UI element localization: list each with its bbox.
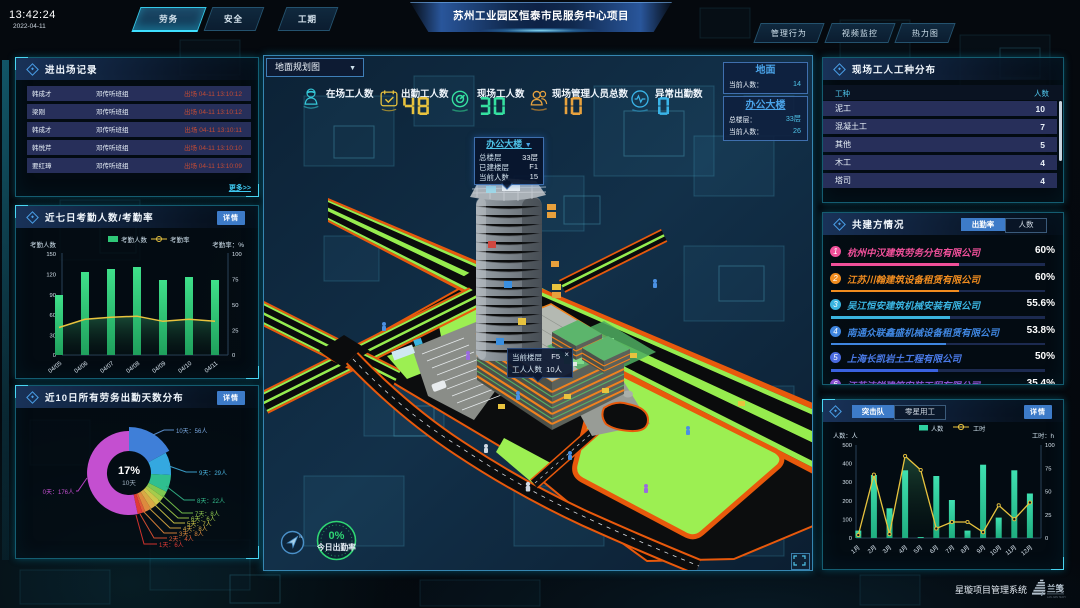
svg-text:2月: 2月 (867, 544, 879, 555)
svg-text:04/11: 04/11 (204, 360, 220, 374)
svg-text:10月: 10月 (989, 544, 1003, 557)
svg-text:300: 300 (842, 480, 852, 486)
svg-text:04/06: 04/06 (74, 360, 90, 374)
svg-text:1天：6人: 1天：6人 (159, 542, 184, 549)
svg-text:100: 100 (232, 252, 242, 258)
svg-text:8天：22人: 8天：22人 (197, 498, 225, 505)
svg-text:75: 75 (232, 278, 238, 284)
svg-text:0天：176人: 0天：176人 (43, 489, 74, 496)
svg-text:人数: 人数 (931, 425, 944, 433)
svg-text:75: 75 (1045, 466, 1051, 472)
svg-text:2天：4人: 2天：4人 (169, 536, 194, 543)
svg-text:考勤率: 考勤率 (170, 235, 190, 244)
svg-text:LAN JIAN TECH: LAN JIAN TECH (1047, 596, 1066, 599)
svg-text:8月: 8月 (960, 544, 972, 555)
svg-text:04/10: 04/10 (178, 360, 194, 374)
svg-text:12月: 12月 (1020, 544, 1034, 557)
svg-text:17%: 17% (118, 465, 140, 477)
svg-text:04/07: 04/07 (100, 360, 116, 374)
svg-text:0: 0 (849, 536, 852, 542)
svg-text:0: 0 (232, 353, 235, 359)
svg-text:400: 400 (842, 462, 852, 468)
svg-text:9天：29人: 9天：29人 (199, 470, 227, 477)
svg-text:100: 100 (842, 517, 852, 523)
svg-text:500: 500 (842, 443, 852, 449)
svg-text:50: 50 (232, 303, 238, 309)
svg-text:4月: 4月 (898, 544, 910, 555)
svg-text:3月: 3月 (882, 544, 894, 555)
svg-text:100: 100 (1045, 443, 1055, 449)
svg-text:04/08: 04/08 (126, 360, 142, 374)
svg-text:7月: 7月 (945, 544, 957, 555)
svg-text:10天: 10天 (122, 479, 136, 487)
svg-text:0: 0 (1045, 536, 1048, 542)
svg-text:9月: 9月 (976, 544, 988, 555)
svg-text:0%: 0% (329, 530, 345, 542)
svg-text:04/09: 04/09 (152, 360, 168, 374)
svg-text:1月: 1月 (850, 544, 862, 555)
svg-text:04/05: 04/05 (48, 360, 64, 374)
svg-text:11月: 11月 (1004, 544, 1018, 557)
svg-text:今日出勤率: 今日出勤率 (316, 542, 356, 552)
svg-text:50: 50 (1045, 490, 1051, 496)
svg-text:人数：人: 人数：人 (833, 432, 858, 440)
svg-text:工时：h: 工时：h (1032, 432, 1055, 440)
svg-text:N: N (299, 534, 302, 539)
svg-text:考勤率：%: 考勤率：% (212, 240, 244, 249)
svg-text:考勤人数: 考勤人数 (121, 235, 148, 244)
svg-text:5月: 5月 (913, 544, 925, 555)
svg-text:10天：56人: 10天：56人 (176, 428, 207, 435)
svg-text:25: 25 (1045, 513, 1051, 519)
svg-text:工时: 工时 (973, 425, 985, 433)
svg-text:考勤人数: 考勤人数 (30, 240, 57, 249)
svg-text:120: 120 (46, 272, 56, 278)
svg-text:25: 25 (232, 329, 238, 335)
svg-text:200: 200 (842, 499, 852, 505)
svg-text:150: 150 (46, 252, 56, 258)
svg-text:兰笺: 兰笺 (1047, 584, 1065, 594)
svg-text:6月: 6月 (929, 544, 941, 555)
